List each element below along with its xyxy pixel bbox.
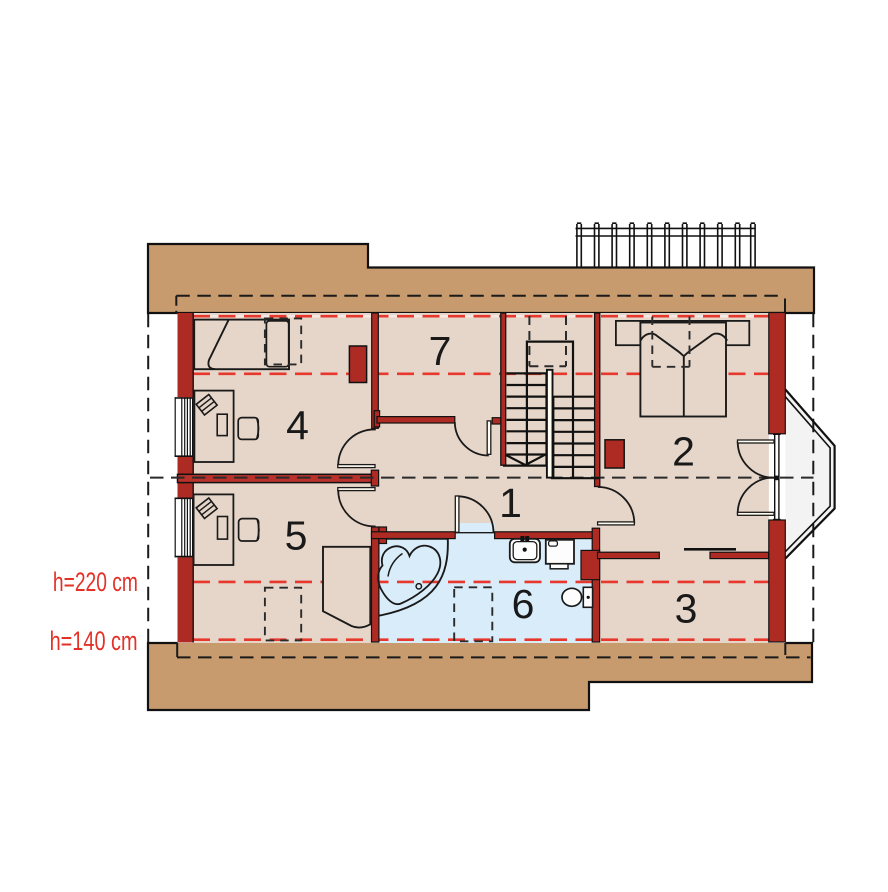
svg-text:3: 3: [675, 586, 698, 632]
svg-text:6: 6: [512, 581, 535, 627]
svg-text:7: 7: [429, 328, 452, 374]
svg-text:4: 4: [286, 403, 309, 449]
svg-text:h=220 cm: h=220 cm: [53, 567, 138, 597]
svg-text:5: 5: [285, 513, 308, 559]
svg-text:2: 2: [672, 429, 695, 475]
svg-text:1: 1: [499, 480, 522, 526]
svg-text:h=140 cm: h=140 cm: [50, 626, 138, 656]
